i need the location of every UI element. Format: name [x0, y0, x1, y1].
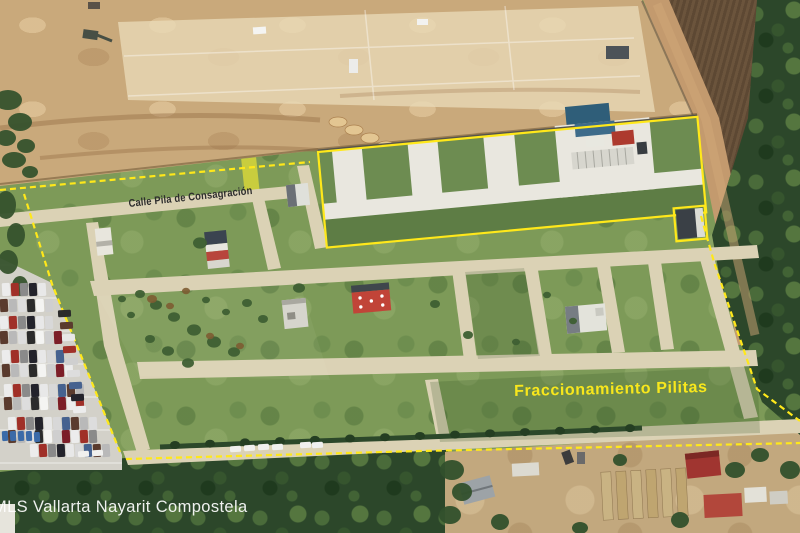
- parked-car: [27, 299, 36, 312]
- parked-car: [13, 397, 22, 410]
- parked-car: [71, 417, 80, 430]
- parked-car: [53, 430, 62, 443]
- parked-car: [47, 364, 56, 377]
- parked-car: [11, 283, 20, 296]
- parked-car: [62, 417, 71, 430]
- parked-car: [36, 299, 45, 312]
- parked-car: [65, 358, 78, 366]
- parked-car: [20, 283, 29, 296]
- parked-car: [45, 299, 54, 312]
- parked-car: [2, 431, 9, 441]
- parked-car: [38, 283, 47, 296]
- parked-car: [39, 444, 48, 457]
- parked-car: [62, 430, 71, 443]
- parked-car: [22, 384, 31, 397]
- parked-car: [58, 384, 67, 397]
- parked-car: [63, 346, 76, 354]
- parked-car: [47, 350, 56, 363]
- parked-car: [67, 370, 80, 378]
- parked-car: [0, 299, 8, 312]
- parked-car: [44, 430, 53, 443]
- parked-car: [29, 364, 38, 377]
- parked-car: [56, 364, 65, 377]
- parked-car: [11, 364, 20, 377]
- parked-car: [2, 283, 11, 296]
- parked-car: [18, 316, 27, 329]
- parked-car: [0, 331, 8, 344]
- parked-car: [26, 417, 35, 430]
- parked-car: [49, 384, 58, 397]
- parked-car: [272, 444, 283, 451]
- parked-car: [18, 299, 27, 312]
- parked-car: [35, 417, 44, 430]
- parked-car: [13, 384, 22, 397]
- parked-car: [18, 331, 27, 344]
- parked-car: [60, 322, 73, 330]
- parked-car: [2, 350, 11, 363]
- parked-car: [80, 417, 89, 430]
- parked-car: [9, 331, 18, 344]
- parked-car: [29, 350, 38, 363]
- parked-car: [40, 384, 49, 397]
- parked-car: [38, 364, 47, 377]
- parked-car: [27, 331, 36, 344]
- parked-car: [62, 334, 75, 342]
- parked-car: [36, 316, 45, 329]
- parked-car: [92, 450, 103, 457]
- parked-car: [9, 299, 18, 312]
- parked-car: [29, 283, 38, 296]
- parked-car: [89, 417, 98, 430]
- parked-car: [244, 445, 255, 452]
- parked-car: [31, 397, 40, 410]
- parked-car: [38, 350, 47, 363]
- parked-car: [30, 444, 39, 457]
- parked-car: [0, 316, 8, 329]
- parked-car: [78, 451, 89, 458]
- parked-car: [18, 431, 25, 441]
- parked-car: [53, 417, 62, 430]
- parked-car: [4, 397, 13, 410]
- parked-car: [26, 431, 33, 441]
- parked-car: [58, 310, 71, 318]
- parked-car: [312, 442, 323, 449]
- parking-cars: [0, 0, 800, 533]
- parked-car: [10, 431, 17, 441]
- parked-car: [9, 316, 18, 329]
- parked-car: [48, 444, 57, 457]
- parked-car: [8, 417, 17, 430]
- parked-car: [45, 331, 54, 344]
- parked-car: [17, 417, 26, 430]
- parked-car: [258, 444, 269, 451]
- parked-car: [34, 432, 41, 442]
- parked-car: [230, 446, 241, 453]
- parked-car: [80, 430, 89, 443]
- parked-car: [73, 406, 86, 414]
- parked-car: [57, 444, 66, 457]
- parked-car: [89, 430, 98, 443]
- parked-car: [45, 316, 54, 329]
- watermark-text: MLS Vallarta Nayarit Compostela: [0, 497, 248, 517]
- parked-car: [71, 430, 80, 443]
- parked-car: [71, 394, 84, 402]
- parked-car: [49, 397, 58, 410]
- parked-car: [20, 364, 29, 377]
- parked-car: [102, 444, 111, 457]
- parked-car: [44, 417, 53, 430]
- parked-car: [36, 331, 45, 344]
- parked-car: [300, 442, 311, 449]
- parked-car: [4, 384, 13, 397]
- parked-car: [58, 397, 67, 410]
- parked-car: [27, 316, 36, 329]
- aerial-photo: Calle Pila de Consagración Fraccionamien…: [0, 0, 800, 533]
- parked-car: [2, 364, 11, 377]
- parked-car: [66, 444, 75, 457]
- parked-car: [40, 397, 49, 410]
- parked-car: [20, 350, 29, 363]
- parked-car: [69, 382, 82, 390]
- parked-car: [31, 384, 40, 397]
- parked-car: [22, 397, 31, 410]
- parked-car: [11, 350, 20, 363]
